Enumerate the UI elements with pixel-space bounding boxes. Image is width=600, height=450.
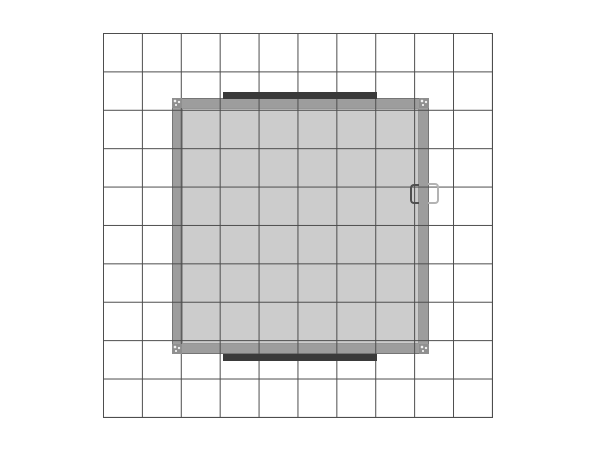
top-accent-bar [223,92,377,99]
diagram-canvas [0,0,600,450]
bottom-accent-bar [223,354,377,361]
corner-connector-bottom-right [419,344,429,354]
corner-connector-top-right [419,98,429,108]
inner-door-handle [410,184,419,204]
corner-connector-bottom-left [172,344,182,354]
outer-door-handle [428,183,439,204]
corner-connector-top-left [172,98,182,108]
